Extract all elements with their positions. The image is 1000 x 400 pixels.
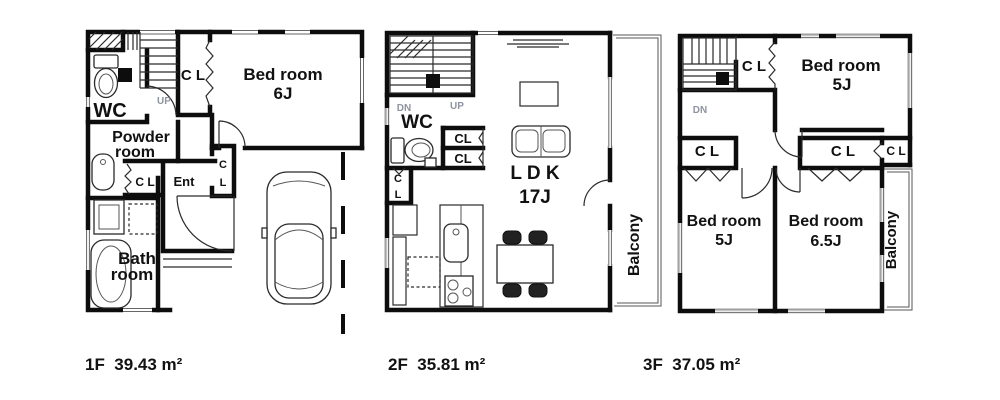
bedroom-label: Bed room (789, 213, 864, 230)
closet-label: C L (886, 144, 905, 158)
walls-3f (680, 36, 910, 311)
bedroom-size-label: 6.5J (810, 233, 841, 250)
toilet-icon (94, 55, 118, 98)
sofa-icon (512, 126, 570, 157)
door-mark-icon (479, 152, 483, 164)
cabinet-icon (393, 237, 406, 305)
stairs-down-icon (683, 36, 736, 90)
bathroom-label: room (111, 265, 154, 284)
floor-area-label-3f: 3F 37.05 m² (643, 355, 740, 375)
door-mark-icon (479, 132, 483, 144)
dining-set-icon (497, 231, 553, 297)
floorplan-canvas: C L Bed room 6J UP WC Powder room C L En… (0, 0, 1000, 400)
closet-door-icon (874, 143, 882, 159)
closet-label: C L (135, 175, 154, 189)
tv-icon (507, 40, 569, 47)
closet-label: C (394, 173, 402, 185)
wc-label: WC (93, 100, 126, 122)
ldk-size-label: 17J (519, 187, 551, 208)
closet-label: L (395, 189, 402, 201)
closet-label: CL (454, 131, 471, 146)
stairs-up-label: UP (450, 101, 464, 112)
closet-label: C L (695, 143, 719, 160)
tv-board-icon (520, 82, 558, 106)
bedroom-label: Bed room (243, 65, 322, 84)
sink-icon (444, 224, 468, 262)
stairs-up-label: UP (157, 96, 171, 107)
door-arc-icon (742, 168, 772, 198)
floorplan-2f: DN UP WC CL CL C L L D K 17J Balcony (383, 28, 665, 313)
closet-label: L (220, 177, 227, 189)
bedroom-size-label: 6J (274, 84, 293, 103)
closet-label: C L (181, 67, 205, 84)
folding-door-icon (206, 40, 213, 107)
floorplan-1f: C L Bed room 6J UP WC Powder room C L En… (85, 28, 370, 340)
closet-label: C L (742, 58, 766, 75)
washer-icon (94, 200, 124, 234)
floorplan-3f: C L Bed room 5J DN C L C L C L Bed room … (676, 28, 914, 314)
folding-door-icon (125, 164, 131, 194)
cabinet-icon (393, 205, 417, 235)
closet-label: CL (454, 151, 471, 166)
bedroom-size-label: 5J (715, 232, 733, 249)
stairs-updown-icon (390, 36, 473, 93)
door-arc-icon (177, 196, 232, 251)
washer-space-icon (129, 204, 157, 234)
powder-room-label: room (115, 144, 155, 161)
bedroom-label: Bed room (801, 56, 880, 75)
washbasin-icon (92, 154, 114, 190)
bedroom-label: Bed room (687, 213, 762, 230)
balcony-label: Balcony (883, 210, 900, 269)
folding-door-icon (769, 42, 775, 90)
floor-area-label-2f: 2F 35.81 m² (388, 355, 485, 375)
closet-label: C L (831, 143, 855, 160)
door-arc-icon (584, 180, 610, 206)
entrance-label: Ent (174, 174, 196, 189)
wc-label: WC (401, 112, 433, 133)
stairs-down-label: DN (693, 105, 707, 116)
balcony-label: Balcony (626, 214, 643, 276)
kitchen-counter-icon (440, 205, 483, 307)
floor-area-label-1f: 1F 39.43 m² (85, 355, 182, 375)
bedroom-size-label: 5J (833, 75, 852, 94)
fridge-space-icon (408, 257, 440, 287)
closet-label: C (219, 159, 227, 171)
door-arc-icon (776, 168, 800, 192)
toilet-icon (391, 138, 436, 167)
ldk-label: L D K (510, 163, 560, 184)
car-icon (262, 172, 336, 304)
